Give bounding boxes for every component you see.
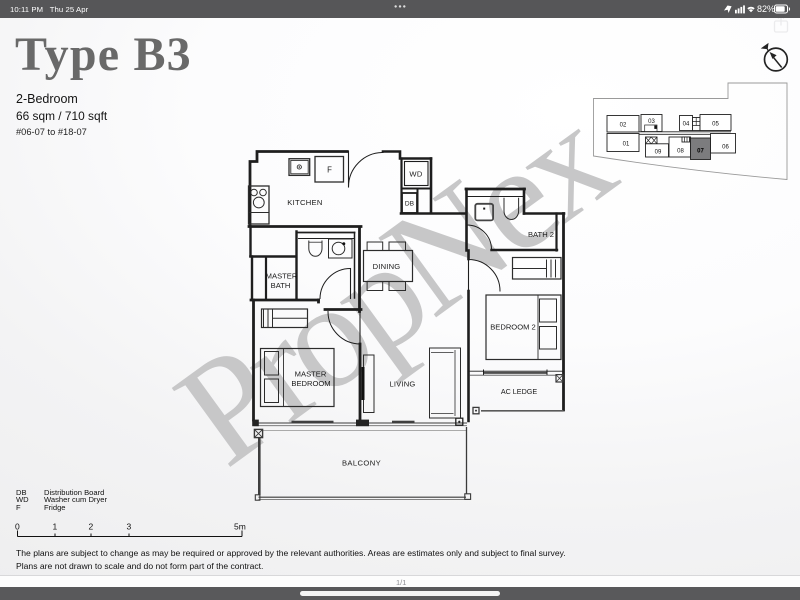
svg-text:3: 3	[127, 522, 132, 532]
svg-text:03: 03	[648, 119, 655, 125]
svg-text:02: 02	[620, 123, 627, 129]
svg-text:06: 06	[722, 145, 729, 151]
svg-text:MASTER: MASTER	[295, 370, 327, 379]
svg-text:2: 2	[89, 522, 94, 532]
svg-text:WD: WD	[409, 170, 422, 179]
svg-text:PropNex: PropNex	[148, 74, 642, 496]
svg-text:0: 0	[15, 522, 20, 532]
svg-text:5m: 5m	[234, 522, 246, 532]
svg-text:MASTER: MASTER	[266, 272, 298, 281]
svg-text:BATH: BATH	[271, 281, 291, 290]
svg-text:F: F	[327, 166, 332, 175]
svg-text:BEDROOM: BEDROOM	[291, 379, 330, 388]
svg-text:07: 07	[697, 149, 704, 155]
svg-text:1: 1	[53, 522, 58, 532]
svg-text:05: 05	[712, 122, 719, 128]
svg-text:08: 08	[677, 149, 684, 155]
svg-text:AC LEDGE: AC LEDGE	[501, 387, 538, 396]
svg-text:09: 09	[655, 150, 662, 156]
svg-text:LIVING: LIVING	[389, 380, 415, 389]
svg-text:BATH 2: BATH 2	[528, 230, 554, 239]
svg-text:KITCHEN: KITCHEN	[287, 198, 322, 207]
svg-text:BEDROOM 2: BEDROOM 2	[490, 323, 536, 332]
svg-text:04: 04	[683, 122, 690, 128]
svg-text:01: 01	[623, 142, 630, 148]
svg-text:DINING: DINING	[373, 262, 401, 271]
svg-text:BALCONY: BALCONY	[342, 459, 381, 468]
svg-text:DB: DB	[405, 201, 415, 208]
